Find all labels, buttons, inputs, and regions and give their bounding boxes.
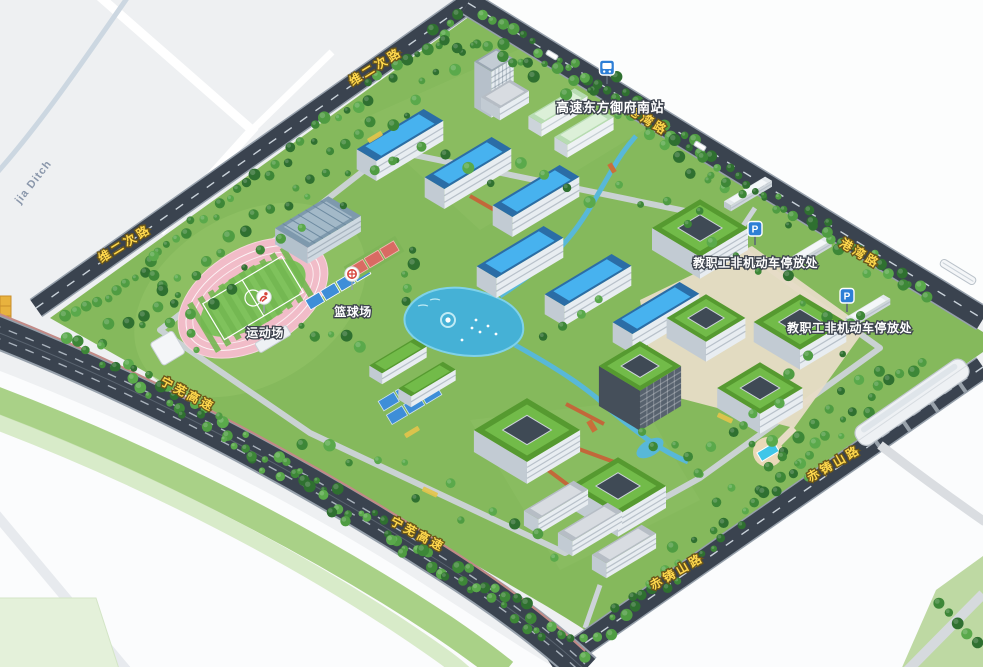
map-canvas[interactable]: 维二次路 维二次路 港湾路 港湾路 赤铸山路 赤铸山路 宁芜高速 宁芜高速 ji… xyxy=(0,0,983,667)
pin-pole xyxy=(263,304,264,313)
parking-icon-pole xyxy=(846,303,848,312)
staff-parking-label-1: 教职工非机动车停放处 xyxy=(692,255,819,270)
basketball-court-label: 篮球场 xyxy=(333,304,372,319)
parking-icon-pole xyxy=(754,236,756,245)
bus-stop-label: 高速东方御府南站 xyxy=(556,100,664,115)
pin-pole xyxy=(351,281,352,290)
campus-3d-map[interactable]: 维二次路 维二次路 港湾路 港湾路 赤铸山路 赤铸山路 宁芜高速 宁芜高速 ji… xyxy=(0,0,983,667)
staff-parking-label-2: 教职工非机动车停放处 xyxy=(786,320,913,335)
bus-glyph-wheel xyxy=(609,70,611,72)
bus-glyph-wheel xyxy=(603,70,605,72)
bus-glyph-window xyxy=(602,63,611,69)
bus-stop-icon-pole xyxy=(606,75,608,84)
parking-icon-letter: P xyxy=(844,291,851,302)
parking-icon-letter: P xyxy=(752,224,759,235)
runner-glyph-head xyxy=(264,292,267,295)
sports-field-label: 运动场 xyxy=(246,326,284,340)
